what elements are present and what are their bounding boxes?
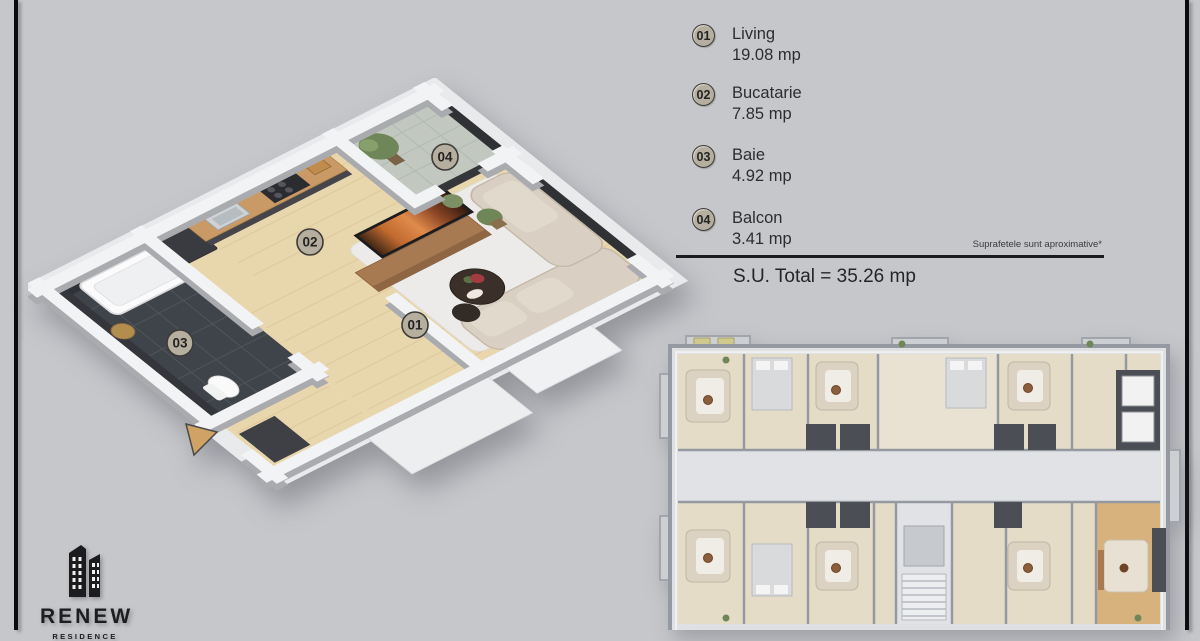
plan-badge-bathroom: 03 (167, 330, 193, 356)
room-area: 3.41 mp (732, 229, 792, 250)
room-legend: 01 Living 19.08 mp 02 Bucatarie 7.85 mp … (676, 22, 1104, 312)
svg-text:03: 03 (172, 336, 188, 351)
room-area: 7.85 mp (732, 104, 802, 125)
legend-item-kitchen: 02 Bucatarie 7.85 mp (692, 83, 802, 125)
room-area: 19.08 mp (732, 45, 801, 66)
floorplan-marketing-image: { "brand": { "name": "RENEW", "subtitle"… (0, 0, 1200, 630)
legend-divider (676, 255, 1104, 258)
brand-name: RENEW (40, 605, 130, 629)
svg-text:02: 02 (302, 235, 317, 250)
central-corridor (678, 450, 1160, 502)
room-name: Balcon (732, 208, 792, 229)
room-name: Bucatarie (732, 83, 802, 104)
total-area: S.U. Total = 35.26 mp (733, 266, 916, 288)
room-area: 4.92 mp (732, 166, 792, 187)
legend-item-bathroom: 03 Baie 4.92 mp (692, 145, 792, 187)
legend-badge-02: 02 (692, 83, 715, 106)
highlighted-unit-kitchen (1152, 528, 1166, 592)
elevator-shaft-center (904, 526, 944, 566)
frame-border-left (14, 0, 18, 630)
svg-text:04: 04 (437, 150, 453, 165)
legend-badge-04: 04 (692, 208, 715, 231)
building-floorplate-plan (656, 330, 1190, 630)
svg-text:01: 01 (407, 318, 423, 333)
apartment-3d-plan: 01 02 03 04 (28, 78, 708, 558)
legend-badge-01: 01 (692, 24, 715, 47)
plan-badge-kitchen: 02 (297, 229, 323, 255)
buildings-icon (65, 544, 105, 598)
plan-badge-living: 01 (402, 312, 428, 338)
room-name: Baie (732, 145, 792, 166)
legend-item-living: 01 Living 19.08 mp (692, 24, 801, 66)
approximation-note: Suprafetele sunt aproximative* (973, 239, 1102, 250)
plan-badge-balcony: 04 (432, 144, 458, 170)
highlighted-unit-tv-console (1098, 550, 1104, 590)
legend-badge-03: 03 (692, 145, 715, 168)
legend-item-balcony: 04 Balcon 3.41 mp (692, 208, 792, 250)
brand-subtitle: RESIDENCE (40, 632, 130, 641)
room-name: Living (732, 24, 801, 45)
brand-logo: RENEW RESIDENCE (40, 544, 130, 641)
